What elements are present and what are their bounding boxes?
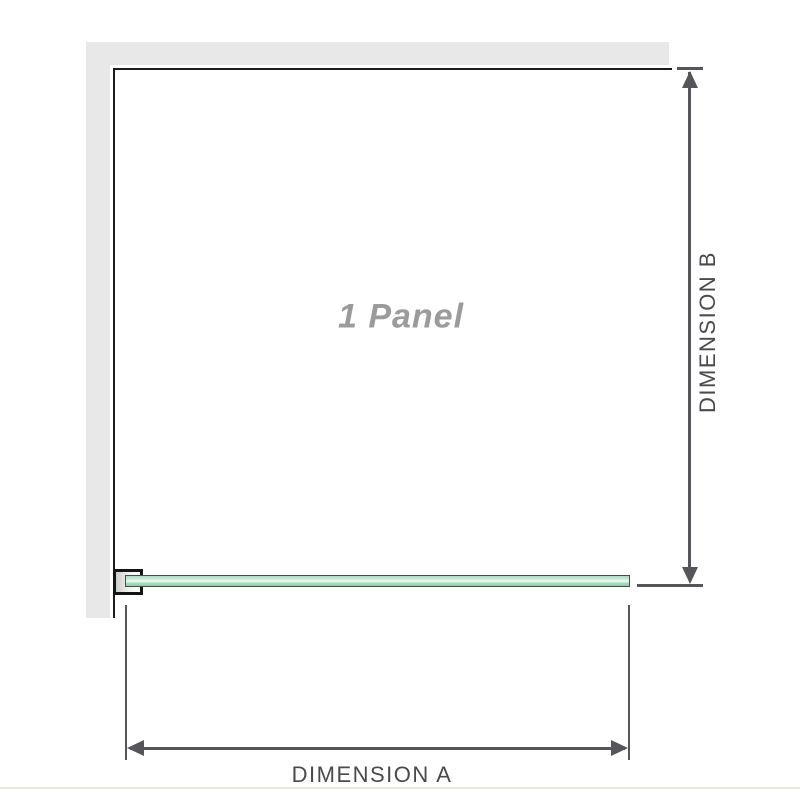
dimension-a-label: DIMENSION A [292,762,453,788]
arrow-right-icon [611,740,628,756]
arrow-left-icon [127,740,144,756]
page-baseline-divider [0,787,800,789]
arrow-up-icon [682,71,698,88]
left-wall-inner-edge [113,68,115,618]
shower-screen-dimension-diagram: 1 Panel DIMENSION B DIMENSION A [0,0,800,800]
dimension-b-label: DIMENSION B [695,251,721,413]
dimension-a-left-extension-line [125,605,127,760]
arrow-down-icon [682,567,698,584]
dimension-a-right-extension-line [628,605,630,760]
dimension-b-line [688,72,691,572]
top-wall-inner-edge [113,68,672,70]
panel-count-label: 1 Panel [338,298,464,337]
left-wall [86,42,110,618]
glass-panel [125,575,630,587]
dimension-b-bottom-tick [637,584,703,587]
dimension-a-line [130,747,625,750]
dimension-b-top-tick [677,67,703,70]
top-wall [86,42,669,65]
